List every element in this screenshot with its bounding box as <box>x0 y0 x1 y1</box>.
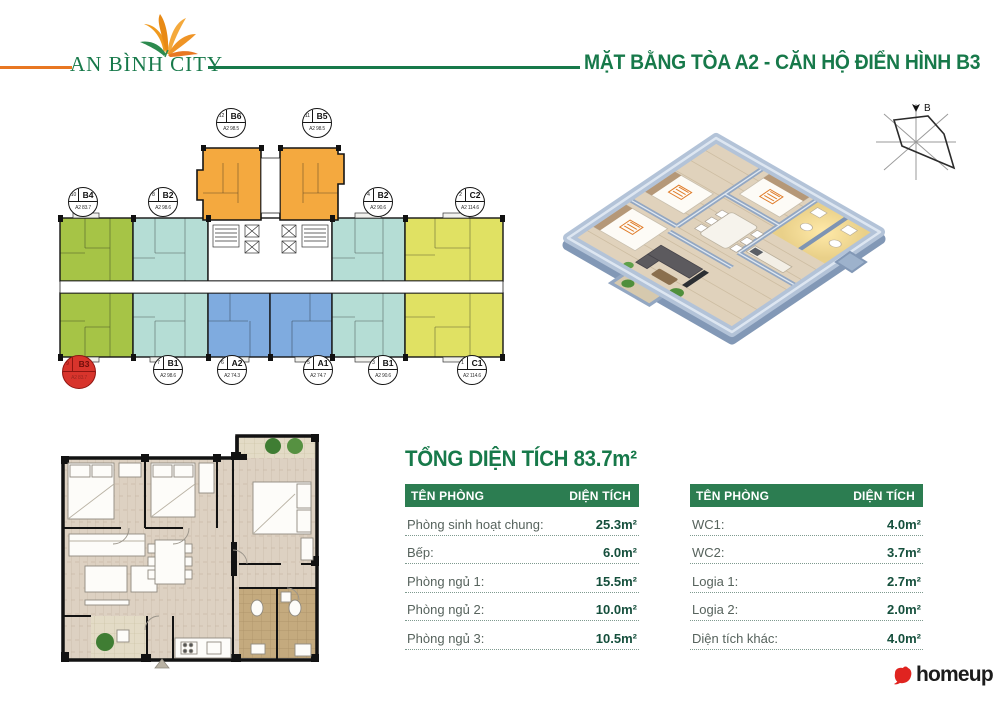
header-green-rule <box>208 66 580 69</box>
table-row: Phòng ngủ 2: 10.0m² <box>405 593 639 622</box>
unit-tag-a1: 5A1 A2 74.7 <box>303 355 333 385</box>
total-area-heading: TỔNG DIỆN TÍCH 83.7m² <box>405 446 637 472</box>
unit-tag-b2-4: 4B2 A2 90.6 <box>363 187 393 217</box>
unit-tag-c2: 2C2 A2 114.6 <box>455 187 485 217</box>
table-row: Diện tích khác: 4.0m² <box>690 621 923 650</box>
unit-tag-b3-highlighted: 9B3 A2 83.7 <box>62 355 96 389</box>
apartment-3d-view <box>560 92 910 397</box>
homeup-wordmark: homeup <box>916 663 993 687</box>
unit-tag-b2-8: 8B2 A2 98.6 <box>148 187 178 217</box>
room-area-table-1: TÊN PHÒNG DIỆN TÍCH Phòng sinh hoạt chun… <box>405 484 639 650</box>
tower-key-plan <box>55 103 507 403</box>
svg-text:B: B <box>924 103 931 114</box>
homeup-icon <box>891 663 913 687</box>
table-row: WC2: 3.7m² <box>690 536 923 565</box>
unit-tag-c1: 1C1 A2 114.6 <box>457 355 487 385</box>
table-row: Phòng ngủ 1: 15.5m² <box>405 564 639 593</box>
table-row: Logia 1: 2.7m² <box>690 564 923 593</box>
unit-tag-a2: 6A2 A2 74.3 <box>217 355 247 385</box>
room-area-table-2: TÊN PHÒNG DIỆN TÍCH WC1: 4.0m² WC2: 3.7m… <box>690 484 923 650</box>
unit-tag-b4: 10B4 A2 83.7 <box>68 187 98 217</box>
unit-tag-b1-7: 7B1 A2 98.6 <box>153 355 183 385</box>
table-header: TÊN PHÒNG DIỆN TÍCH <box>405 484 639 507</box>
unit-tag-b6: 12B6 A2 98.5 <box>216 108 246 138</box>
logo-wordmark: AN BÌNH CITY <box>70 52 212 77</box>
brochure-page: AN BÌNH CITY MẶT BẰNG TÒA A2 - CĂN HỘ ĐI… <box>0 0 1000 706</box>
header-orange-rule <box>0 66 72 69</box>
homeup-brand: homeup <box>891 663 993 687</box>
page-title: MẶT BẰNG TÒA A2 - CĂN HỘ ĐIỂN HÌNH B3 <box>584 51 961 75</box>
col-area: DIỆN TÍCH <box>569 489 631 503</box>
unit-tag-b5: 11B5 A2 98.5 <box>302 108 332 138</box>
unit-floor-plan-2d <box>55 424 347 684</box>
table-row: Logia 2: 2.0m² <box>690 593 923 622</box>
col-room-name: TÊN PHÒNG <box>411 489 484 503</box>
table-row: Bếp: 6.0m² <box>405 536 639 565</box>
tower-key-plan-drawing <box>55 103 507 403</box>
table-header: TÊN PHÒNG DIỆN TÍCH <box>690 484 923 507</box>
col-area: DIỆN TÍCH <box>853 489 915 503</box>
compass-icon: B <box>866 98 966 186</box>
col-room-name: TÊN PHÒNG <box>696 489 769 503</box>
table-row: WC1: 4.0m² <box>690 507 923 536</box>
table-row: Phòng sinh hoạt chung: 25.3m² <box>405 507 639 536</box>
unit-tag-b1-3: 3B1 A2 90.6 <box>368 355 398 385</box>
table-row: Phòng ngủ 3: 10.5m² <box>405 621 639 650</box>
